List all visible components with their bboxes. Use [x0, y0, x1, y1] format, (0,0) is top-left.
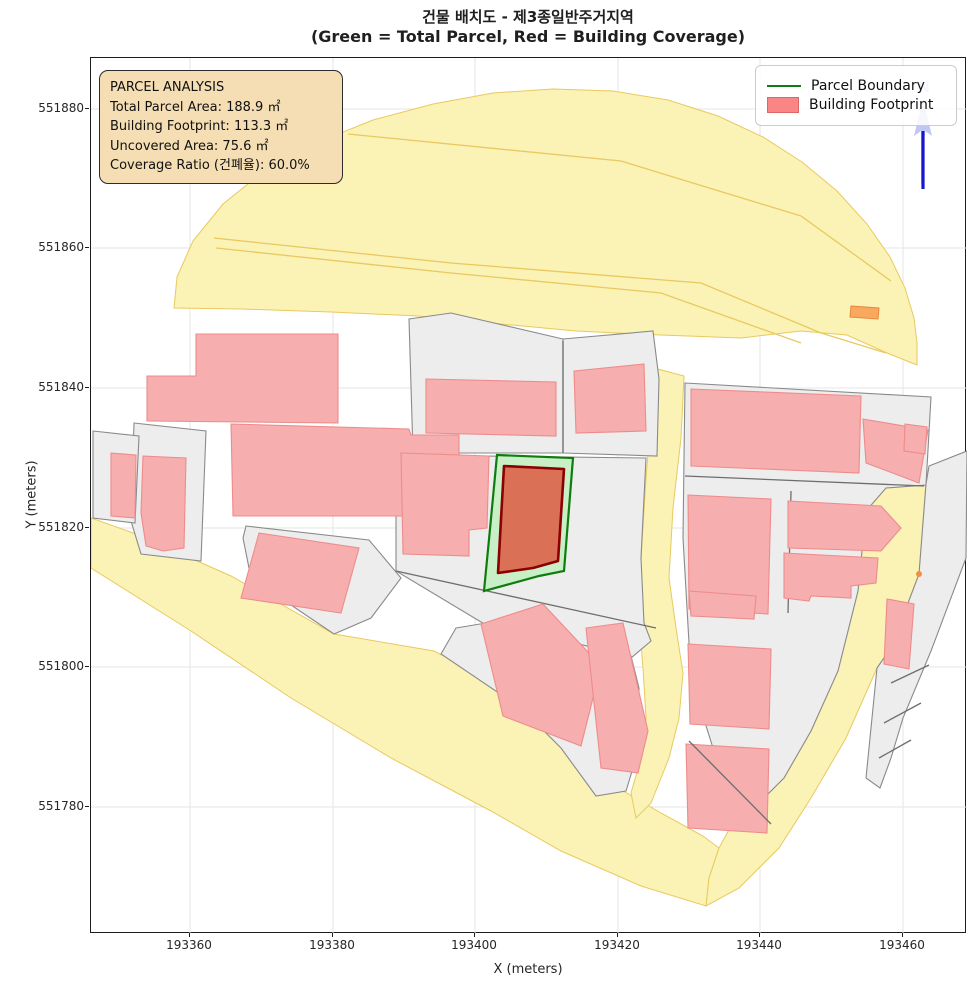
building-west-tilted: [241, 533, 359, 613]
x-tick-label: 193420: [582, 938, 652, 952]
green-line-swatch-icon: [767, 85, 801, 87]
info-box-line-uncovered: Uncovered Area: 75.6 ㎡: [110, 137, 332, 157]
y-tick-mark: [85, 666, 89, 667]
x-tick-mark: [617, 933, 618, 937]
map-canvas: [91, 58, 967, 934]
analyzed-building-footprint: [498, 466, 564, 573]
plot-area: PARCEL ANALYSIS Total Parcel Area: 188.9…: [90, 57, 966, 933]
red-patch-swatch-icon: [767, 97, 799, 113]
y-tick-mark: [85, 527, 89, 528]
legend-label: Parcel Boundary: [811, 78, 925, 94]
x-tick-mark: [902, 933, 903, 937]
legend-item-building-footprint: Building Footprint: [767, 97, 945, 113]
info-box-title: PARCEL ANALYSIS: [110, 78, 332, 98]
y-tick-label: 551820: [14, 520, 84, 534]
x-tick-label: 193460: [867, 938, 937, 952]
x-tick-mark: [332, 933, 333, 937]
building-far-east-small: [904, 424, 927, 454]
x-tick-label: 193360: [154, 938, 224, 952]
building-se-small-top: [689, 591, 756, 619]
x-axis-label: X (meters): [90, 962, 966, 977]
x-tick-mark: [474, 933, 475, 937]
x-tick-mark: [189, 933, 190, 937]
y-tick-label: 551780: [14, 799, 84, 813]
y-tick-mark: [85, 108, 89, 109]
y-tick-mark: [85, 387, 89, 388]
y-tick-mark: [85, 247, 89, 248]
building-east-top-large: [691, 389, 861, 473]
info-box-line-footprint: Building Footprint: 113.3 ㎡: [110, 117, 332, 137]
building-top-center-left: [426, 379, 556, 436]
chart-subtitle: (Green = Total Parcel, Red = Building Co…: [90, 27, 966, 46]
y-tick-label: 551800: [14, 659, 84, 673]
y-axis-label: Y (meters): [25, 435, 40, 555]
building-se-large: [688, 644, 771, 729]
figure: 건물 배치도 - 제3종일반주거지역 (Green = Total Parcel…: [0, 0, 976, 990]
building-se-slanted: [686, 744, 769, 833]
building-far-west: [111, 453, 136, 518]
marker-orange-dot: [916, 571, 922, 577]
building-nw-upper: [147, 334, 338, 423]
info-box-line-coverage: Coverage Ratio (건폐율): 60.0%: [110, 156, 332, 176]
x-tick-mark: [759, 933, 760, 937]
y-tick-label: 551840: [14, 380, 84, 394]
legend: Parcel Boundary Building Footprint: [755, 65, 957, 126]
legend-label: Building Footprint: [809, 97, 933, 113]
building-top-center-right: [574, 364, 646, 433]
info-box-line-total: Total Parcel Area: 188.9 ㎡: [110, 98, 332, 118]
y-tick-mark: [85, 806, 89, 807]
parcel-analysis-info-box: PARCEL ANALYSIS Total Parcel Area: 188.9…: [99, 70, 343, 184]
building-west-blob: [141, 456, 186, 551]
y-tick-label: 551880: [14, 101, 84, 115]
building-far-east-tilted: [884, 599, 914, 669]
building-orange-in-road: [850, 306, 879, 319]
x-tick-label: 193400: [439, 938, 509, 952]
y-tick-label: 551860: [14, 240, 84, 254]
chart-title: 건물 배치도 - 제3종일반주거지역: [90, 6, 966, 27]
x-tick-label: 193440: [724, 938, 794, 952]
x-tick-label: 193380: [297, 938, 367, 952]
legend-item-parcel-boundary: Parcel Boundary: [767, 78, 945, 94]
